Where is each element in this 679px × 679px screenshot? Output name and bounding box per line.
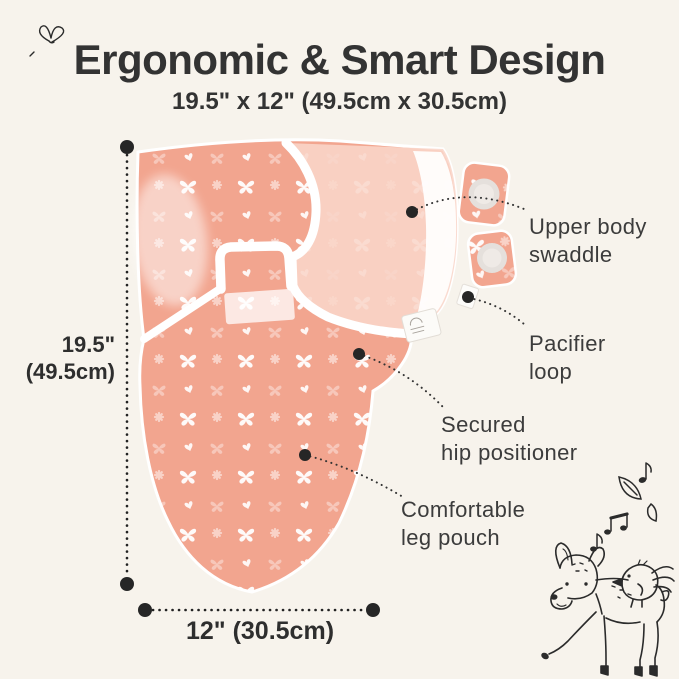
width-dimension-label: 12" (30.5cm) [120, 617, 400, 646]
height-dimension-line [120, 140, 134, 591]
height-dimension-label: 19.5" (49.5cm) [0, 332, 115, 386]
callout-line: hip positioner [441, 440, 577, 465]
fastener-patch [224, 289, 295, 325]
music-notes-icon [590, 463, 656, 552]
leader-pacifier [469, 298, 524, 324]
deer-and-bird-doodle-icon [540, 543, 674, 676]
callout-line: Pacifier [529, 331, 606, 356]
callout-line: Upper body [529, 214, 647, 239]
callout-pacifier-loop: Pacifier loop [529, 330, 606, 386]
height-inches: 19.5" [0, 332, 115, 359]
fastening-tabs [458, 161, 518, 288]
callout-secured-hip-positioner: Secured hip positioner [441, 411, 577, 467]
callout-line: Comfortable [401, 497, 525, 522]
callout-line: leg pouch [401, 525, 500, 550]
infographic-canvas: Ergonomic & Smart Design 19.5" x 12" (49… [0, 0, 679, 679]
callout-comfortable-leg-pouch: Comfortable leg pouch [401, 496, 525, 552]
height-cm: (49.5cm) [0, 359, 115, 386]
leaf-doodle-icon [619, 477, 641, 499]
callout-upper-body-swaddle: Upper body swaddle [529, 213, 647, 269]
butterfly-doodle-icon [30, 26, 64, 56]
callout-line: Secured [441, 412, 526, 437]
width-dimension-line [138, 603, 380, 617]
callout-line: loop [529, 359, 572, 384]
leaf-doodle-icon [648, 504, 657, 521]
swaddle-wing [286, 143, 457, 334]
callout-line: swaddle [529, 242, 613, 267]
